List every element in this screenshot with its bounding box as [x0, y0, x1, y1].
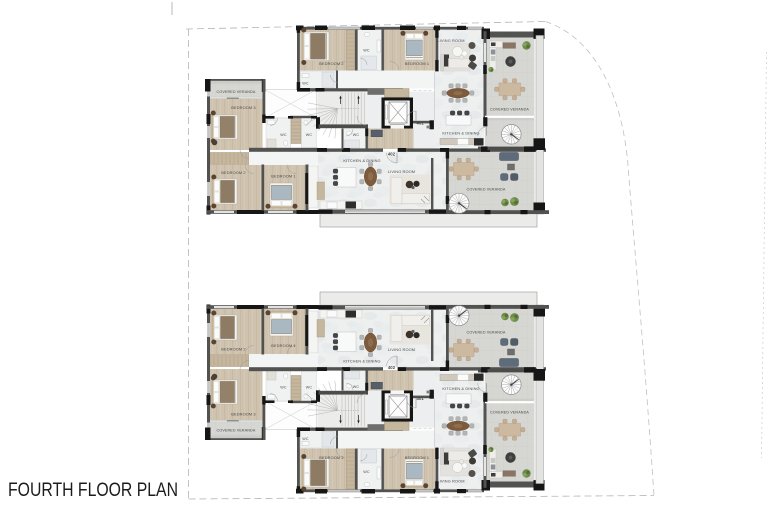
svg-text:COVERED VERANDA: COVERED VERANDA: [490, 108, 529, 112]
svg-text:401: 401: [417, 120, 425, 125]
svg-text:BEDROOM 2: BEDROOM 2: [221, 346, 245, 351]
svg-text:WC: WC: [280, 385, 287, 389]
svg-text:BEDROOM 2: BEDROOM 2: [221, 170, 245, 175]
svg-text:402: 402: [388, 365, 396, 370]
svg-text:BEDROOM 3: BEDROOM 3: [231, 105, 255, 110]
svg-text:LIVING ROOM: LIVING ROOM: [388, 347, 415, 352]
svg-text:FOURTH FLOOR PLAN: FOURTH FLOOR PLAN: [8, 479, 178, 501]
svg-text:BEDROOM 1: BEDROOM 1: [405, 455, 429, 460]
svg-text:LIVING ROOM: LIVING ROOM: [437, 38, 464, 43]
svg-text:WC: WC: [363, 48, 370, 52]
svg-text:BEDROOM 2: BEDROOM 2: [319, 455, 343, 460]
svg-text:KITCHEN & DINING: KITCHEN & DINING: [442, 130, 479, 135]
svg-text:WC: WC: [353, 385, 360, 389]
svg-text:WC: WC: [306, 385, 313, 389]
svg-text:COVERED VERANDA: COVERED VERANDA: [467, 188, 506, 192]
svg-text:402: 402: [388, 151, 396, 156]
svg-text:LIVING ROOM: LIVING ROOM: [388, 169, 415, 174]
svg-text:COVERED VERANDA: COVERED VERANDA: [467, 330, 506, 334]
svg-text:WC: WC: [280, 133, 287, 137]
svg-text:COVERED VERANDA: COVERED VERANDA: [490, 411, 529, 415]
svg-text:BEDROOM 3: BEDROOM 3: [231, 411, 255, 416]
svg-text:WC: WC: [302, 81, 309, 85]
svg-text:BEDROOM 1: BEDROOM 1: [271, 343, 295, 348]
svg-text:WC: WC: [353, 133, 360, 137]
svg-text:LIVING ROOM: LIVING ROOM: [437, 478, 464, 483]
svg-text:BEDROOM 2: BEDROOM 2: [319, 61, 343, 66]
svg-text:COVERED VERANDA: COVERED VERANDA: [217, 90, 256, 94]
svg-text:KITCHEN & DINING: KITCHEN & DINING: [343, 358, 380, 363]
svg-text:KITCHEN & DINING: KITCHEN & DINING: [343, 158, 380, 163]
svg-text:401: 401: [417, 396, 425, 401]
svg-text:WC: WC: [302, 437, 309, 441]
svg-text:COVERED VERANDA: COVERED VERANDA: [217, 428, 256, 432]
svg-text:BEDROOM 1: BEDROOM 1: [271, 173, 295, 178]
svg-text:WC: WC: [306, 133, 313, 137]
svg-text:BEDROOM 1: BEDROOM 1: [405, 61, 429, 66]
svg-text:WC: WC: [363, 470, 370, 474]
svg-text:KITCHEN & DINING: KITCHEN & DINING: [442, 386, 479, 391]
